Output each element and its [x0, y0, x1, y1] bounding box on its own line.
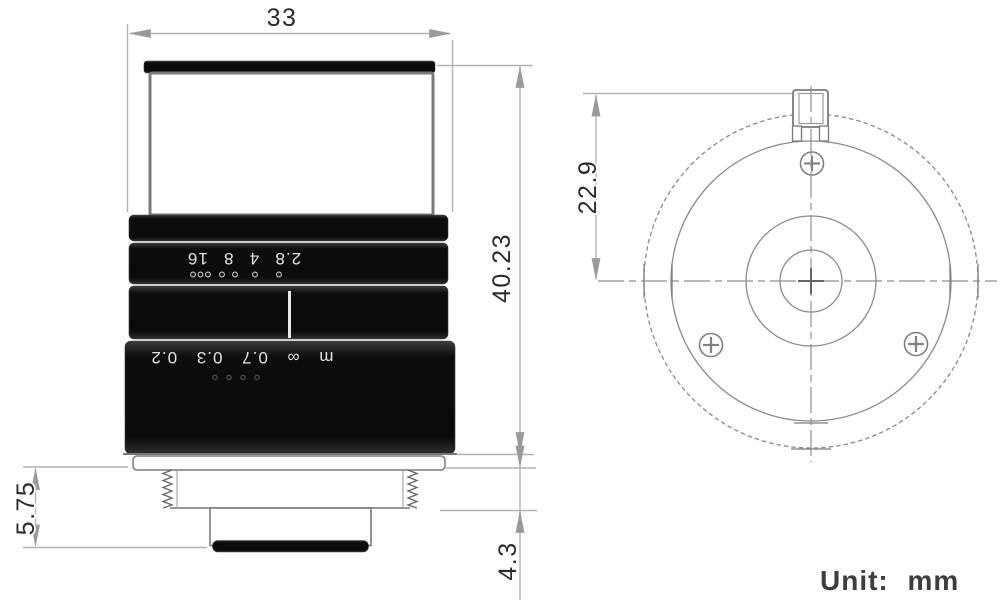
thread-right — [408, 470, 417, 508]
dimension-mount-22-9: 22.9 — [574, 94, 792, 280]
screw-lower-left — [700, 334, 723, 357]
lock-tab-foot-right — [820, 126, 829, 141]
technical-drawing-svg: 2.8 4 8 16 m ∞ 0.7 0.3 0.2 — [0, 0, 1000, 608]
lens-dimension-drawing: 2.8 4 8 16 m ∞ 0.7 0.3 0.2 — [0, 0, 1000, 608]
front-rim — [144, 61, 435, 73]
lens-side-view: 2.8 4 8 16 m ∞ 0.7 0.3 0.2 — [123, 61, 457, 552]
unit-label: Unit: mm — [820, 565, 959, 596]
dim-label-thread: 4.3 — [494, 541, 522, 580]
filter-ring — [129, 215, 448, 241]
dim-label-width: 33 — [267, 4, 298, 32]
dim-label-height: 40.23 — [488, 233, 516, 303]
lens-front-view — [598, 86, 997, 462]
focus-scale-text: m ∞ 0.7 0.3 0.2 — [150, 348, 333, 367]
thread-section — [163, 470, 417, 508]
rear-mount-step — [210, 508, 371, 546]
dim-label-mount: 22.9 — [574, 160, 602, 215]
center-cross — [798, 268, 824, 294]
flange — [133, 456, 445, 470]
screw-top — [801, 152, 824, 175]
screw-lower-right — [905, 333, 928, 356]
hood-body — [150, 73, 433, 215]
lock-tab-foot-left — [793, 126, 802, 141]
rear-cap-bar — [213, 541, 369, 553]
aperture-scale-text: 2.8 4 8 16 — [187, 249, 301, 268]
dimension-thread-4-3: 4.3 — [440, 446, 537, 600]
dim-label-rear: 5.75 — [12, 481, 40, 536]
thread-left — [163, 470, 172, 508]
